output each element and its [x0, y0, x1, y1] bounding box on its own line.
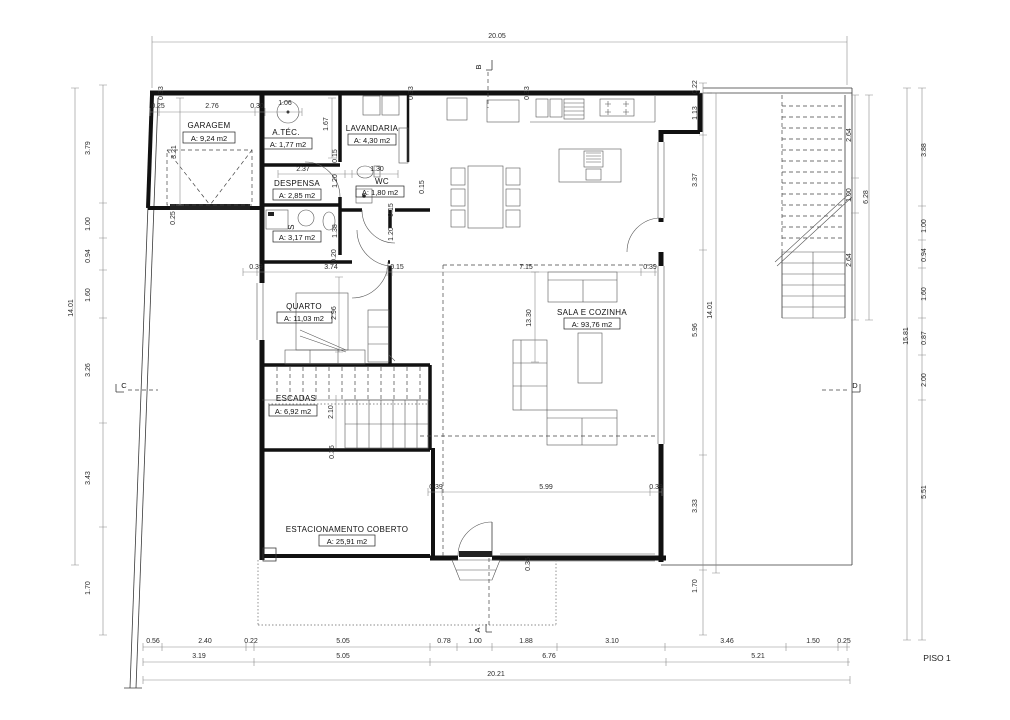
dim-label: 3.79	[85, 141, 92, 155]
room-label-escadas: ESCADAS	[276, 394, 316, 403]
dim-label: 5.99	[539, 484, 553, 491]
dim-label: 1.70	[85, 581, 92, 595]
dim-label: 3.37	[692, 173, 699, 187]
dim-label: 14.01	[707, 301, 714, 319]
dim-label: 1.30	[370, 166, 384, 173]
stove	[600, 99, 634, 116]
property-boundary	[124, 88, 852, 688]
dim-label: 0.87	[921, 331, 928, 345]
section-marker-c: C	[121, 381, 127, 390]
dim-label: 3.21	[171, 145, 178, 159]
dim-label: 1.60	[85, 288, 92, 302]
dim-label: 13.30	[526, 309, 533, 327]
room-label-wc: WC	[375, 177, 389, 186]
dim-label: 0.94	[921, 248, 928, 262]
section-marker-a: A	[473, 627, 482, 632]
dim-label: 2.10	[328, 405, 335, 419]
dim-label: 1.20	[332, 174, 339, 188]
dim-label: 0.36	[525, 557, 532, 571]
s-bath-fixtures	[266, 210, 335, 230]
dim-label: 1.38	[332, 224, 339, 238]
dim-label: 3.19	[192, 653, 206, 660]
dim-label: 1.00	[846, 188, 853, 202]
dim-label: 0.33	[524, 86, 531, 100]
kitchen-island	[559, 149, 621, 182]
dim-label: 3.74	[324, 264, 338, 271]
kitchen-fixtures	[447, 96, 655, 182]
dim-label: 1.13	[692, 106, 699, 120]
living-furniture	[513, 272, 617, 445]
dim-label: 0.39	[643, 264, 657, 271]
dim-label: 0.22	[692, 80, 699, 94]
dim-label: 1.88	[519, 638, 533, 645]
dim-label: 3.46	[720, 638, 734, 645]
dim-label: 6.28	[863, 190, 870, 204]
dim-label: 20.21	[487, 671, 505, 678]
dim-label: 3.88	[921, 143, 928, 157]
section-lines	[116, 60, 860, 632]
dim-label: 1.00	[468, 638, 482, 645]
room-label-estacionamento: ESTACIONAMENTO COBERTO	[286, 525, 408, 534]
dim-label: 0.33	[158, 86, 165, 100]
dim-label: 0.56	[146, 638, 160, 645]
dim-label: 0.36	[329, 445, 336, 459]
dim-label: 2.00	[921, 373, 928, 387]
drainer-hatch	[564, 99, 584, 119]
dim-label: 0.20	[331, 249, 338, 263]
dim-label: 5.96	[692, 323, 699, 337]
dim-label: 5.05	[336, 653, 350, 660]
entry-steps	[452, 560, 500, 580]
dim-label: 6.76	[542, 653, 556, 660]
room-label-despensa: DESPENSA	[274, 179, 320, 188]
room-label-atec: A.TÉC.	[272, 128, 300, 137]
dim-label: 0.22	[244, 638, 258, 645]
dim-label: 1.06	[278, 100, 292, 107]
dim-label: 1.50	[806, 638, 820, 645]
dining-set	[451, 166, 520, 228]
dim-label: 0.39	[649, 484, 663, 491]
dim-label: 0.30	[250, 103, 264, 110]
sink-bowl	[550, 99, 562, 117]
dim-label: 0.39	[429, 484, 443, 491]
room-area-lavandaria: A: 4,30 m2	[354, 136, 390, 145]
room-area-atec: A: 1,77 m2	[270, 140, 306, 149]
door-swings	[305, 162, 661, 580]
dim-label: 5.51	[921, 485, 928, 499]
room-area-despensa: A: 2,85 m2	[279, 191, 315, 200]
room-label-lavandaria: LAVANDARIA	[346, 124, 399, 133]
dim-label: 15.81	[903, 327, 910, 345]
sink-bowl	[536, 99, 548, 117]
dim-label: 1.00	[85, 217, 92, 231]
room-area-garagem: A: 9,24 m2	[191, 134, 227, 143]
dim-label: 2.40	[198, 638, 212, 645]
dim-label: 14.01	[68, 299, 75, 317]
dim-label: 0.25	[170, 211, 177, 225]
dim-label: 0.25	[837, 638, 851, 645]
exterior-walls	[148, 93, 700, 562]
room-label-quarto: QUARTO	[286, 302, 322, 311]
round-basin	[298, 210, 314, 226]
room-area-escadas: A: 6,92 m2	[275, 407, 311, 416]
section-marker-b: B	[474, 64, 483, 69]
room-label-garagem: GARAGEM	[188, 121, 231, 130]
dim-label: 0.15	[388, 203, 395, 217]
dim-label: 5.21	[751, 653, 765, 660]
dim-label: 3.26	[85, 363, 92, 377]
dim-label: 2.64	[846, 253, 853, 267]
dim-label: 0.33	[408, 86, 415, 100]
dim-label: 0.39	[249, 264, 263, 271]
dim-label: 0.15	[419, 180, 426, 194]
room-label-s: S	[287, 224, 296, 230]
dim-label: 3.10	[605, 638, 619, 645]
room-labels: GARAGEM A: 9,24 m2 A.TÉC. A: 1,77 m2 LAV…	[183, 121, 627, 546]
section-marker-d: D	[852, 381, 858, 390]
dim-label: 0.25	[151, 103, 165, 110]
room-label-sala: SALA E COZINHA	[557, 308, 627, 317]
dim-label: 3.33	[692, 499, 699, 513]
room-area-sala: A: 93,76 m2	[572, 320, 612, 329]
sheet-title: PISO 1	[923, 653, 951, 663]
dim-label: 1.67	[323, 117, 330, 131]
dim-label: 3.43	[85, 471, 92, 485]
floor-plan-canvas: B A C D 20.05 0.25 2.76 0.30 1.06 0.33 0…	[0, 0, 1010, 720]
dim-label: 20.05	[488, 33, 506, 40]
dim-label: 2.76	[205, 103, 219, 110]
dim-label: 2.64	[846, 128, 853, 142]
dim-label: 7.15	[519, 264, 533, 271]
dim-label: 1.70	[692, 579, 699, 593]
dim-label: 1.60	[921, 287, 928, 301]
dim-label: 0.15	[332, 149, 339, 163]
dim-label: 5.05	[336, 638, 350, 645]
room-area-quarto: A: 11,03 m2	[284, 314, 324, 323]
dim-label: 2.37	[296, 166, 310, 173]
exterior-stairs	[775, 95, 852, 318]
coffee-table	[578, 333, 602, 383]
room-area-estacionamento: A: 25,91 m2	[327, 537, 367, 546]
entry-threshold	[459, 551, 492, 557]
room-area-s: A: 3,17 m2	[279, 233, 315, 242]
dim-label: 1.00	[921, 219, 928, 233]
dim-label: 0.15	[390, 264, 404, 271]
dim-label: 0.94	[85, 249, 92, 263]
floorplan-sheet: B A C D 20.05 0.25 2.76 0.30 1.06 0.33 0…	[0, 0, 1010, 720]
dim-label: 0.78	[437, 638, 451, 645]
dim-label: 1.20	[388, 227, 395, 241]
room-area-wc: A: 1,80 m2	[362, 188, 398, 197]
